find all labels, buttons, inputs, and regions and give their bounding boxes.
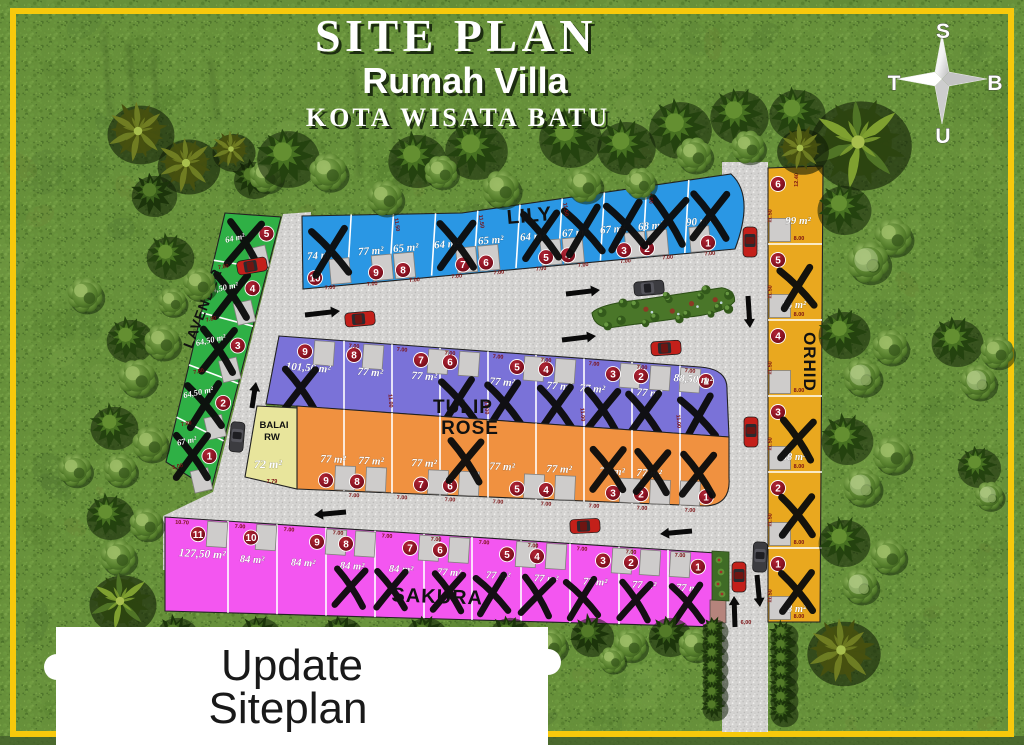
svg-text:7.00: 7.00 — [397, 347, 408, 354]
svg-text:8.00: 8.00 — [794, 236, 805, 242]
svg-text:5: 5 — [514, 363, 520, 374]
svg-text:10.70: 10.70 — [175, 520, 189, 527]
svg-text:7.00: 7.00 — [235, 524, 246, 531]
svg-text:Update: Update — [221, 641, 363, 690]
svg-text:3: 3 — [610, 489, 616, 500]
svg-text:7,79: 7,79 — [267, 479, 278, 485]
svg-text:7.00: 7.00 — [589, 503, 600, 509]
svg-text:77 m²: 77 m² — [411, 457, 438, 470]
svg-text:7.00: 7.00 — [662, 255, 673, 262]
svg-text:99 m²: 99 m² — [785, 215, 811, 227]
svg-text:77 m²: 77 m² — [358, 455, 385, 468]
svg-text:7.00: 7.00 — [409, 277, 420, 284]
svg-text:3: 3 — [235, 341, 241, 352]
svg-text:11.50: 11.50 — [767, 361, 773, 375]
svg-text:7: 7 — [418, 356, 424, 367]
svg-text:6,00: 6,00 — [741, 620, 752, 626]
svg-text:KOTA WISATA BATU: KOTA WISATA BATU — [306, 103, 610, 132]
svg-text:11.50: 11.50 — [767, 209, 773, 223]
svg-text:7.00: 7.00 — [284, 527, 295, 534]
svg-text:7.00: 7.00 — [493, 499, 504, 505]
svg-text:1: 1 — [695, 562, 701, 573]
svg-text:SAKURA: SAKURA — [391, 584, 483, 609]
svg-text:8: 8 — [343, 539, 349, 550]
svg-text:7.00: 7.00 — [493, 354, 504, 361]
svg-text:6: 6 — [447, 358, 453, 369]
svg-text:7.00: 7.00 — [536, 266, 547, 273]
svg-text:7.00: 7.00 — [333, 530, 344, 537]
svg-text:S: S — [936, 20, 950, 43]
svg-text:SITE PLAN: SITE PLAN — [315, 10, 597, 61]
svg-text:7: 7 — [418, 480, 424, 491]
svg-text:9: 9 — [302, 347, 308, 358]
svg-text:7.00: 7.00 — [528, 543, 539, 550]
svg-text:7.00: 7.00 — [626, 549, 637, 556]
svg-text:84 m²: 84 m² — [240, 554, 266, 566]
svg-text:RW: RW — [264, 432, 280, 443]
svg-text:7.00: 7.00 — [445, 351, 456, 358]
svg-text:8.00: 8.00 — [794, 540, 805, 546]
svg-text:7.00: 7.00 — [493, 270, 504, 277]
svg-text:11.00: 11.00 — [579, 408, 586, 422]
svg-text:7.00: 7.00 — [325, 285, 336, 292]
svg-text:4: 4 — [543, 365, 549, 376]
svg-text:11.00: 11.00 — [387, 394, 394, 408]
svg-text:ROSE: ROSE — [441, 418, 499, 439]
svg-text:77 m²: 77 m² — [357, 366, 384, 380]
svg-text:7.00: 7.00 — [675, 553, 686, 560]
svg-text:7.00: 7.00 — [577, 546, 588, 553]
svg-text:11.50: 11.50 — [767, 513, 773, 527]
svg-text:1: 1 — [705, 238, 711, 249]
svg-text:TULIP: TULIP — [433, 397, 493, 418]
svg-text:Siteplan: Siteplan — [208, 684, 367, 733]
svg-text:7.00: 7.00 — [451, 273, 462, 280]
svg-text:7.00: 7.00 — [685, 508, 696, 514]
svg-text:7.00: 7.00 — [637, 365, 648, 372]
svg-text:4: 4 — [534, 552, 540, 563]
svg-text:7.00: 7.00 — [431, 537, 442, 544]
svg-text:8: 8 — [400, 266, 406, 277]
svg-text:7.00: 7.00 — [685, 368, 696, 375]
svg-text:3: 3 — [621, 246, 627, 257]
svg-text:ORHID: ORHID — [800, 332, 819, 392]
svg-text:3: 3 — [610, 370, 616, 381]
svg-text:7.00: 7.00 — [637, 506, 648, 512]
svg-text:65 m²: 65 m² — [478, 234, 505, 248]
svg-text:7.00: 7.00 — [479, 540, 490, 547]
svg-text:7.00: 7.00 — [382, 533, 393, 540]
svg-text:4: 4 — [775, 332, 781, 343]
svg-text:B: B — [987, 72, 1002, 95]
svg-text:5: 5 — [514, 484, 520, 495]
svg-text:7.00: 7.00 — [445, 497, 456, 503]
svg-text:7.00: 7.00 — [589, 361, 600, 368]
svg-text:11.00: 11.00 — [675, 415, 682, 429]
svg-text:11: 11 — [193, 530, 204, 541]
svg-text:6: 6 — [437, 546, 443, 557]
svg-text:5: 5 — [504, 550, 510, 561]
svg-text:6: 6 — [775, 180, 781, 191]
svg-text:7.00: 7.00 — [704, 251, 715, 258]
svg-text:1: 1 — [775, 560, 781, 571]
svg-text:7.00: 7.00 — [541, 501, 552, 507]
svg-text:9: 9 — [373, 268, 379, 279]
svg-text:5: 5 — [543, 253, 549, 264]
svg-text:2: 2 — [220, 399, 226, 410]
svg-text:77 m²: 77 m² — [546, 463, 573, 476]
svg-text:2: 2 — [638, 372, 644, 383]
svg-text:U: U — [935, 125, 950, 148]
svg-text:77 m²: 77 m² — [358, 244, 385, 258]
svg-text:BALAI: BALAI — [259, 420, 288, 431]
svg-text:7.00: 7.00 — [578, 262, 589, 269]
svg-text:3: 3 — [600, 556, 606, 567]
svg-text:84 m²: 84 m² — [291, 557, 317, 569]
svg-text:7.00: 7.00 — [349, 343, 360, 350]
svg-text:8.00: 8.00 — [794, 312, 805, 318]
svg-text:9: 9 — [323, 476, 329, 487]
svg-text:7.00: 7.00 — [541, 358, 552, 365]
svg-text:8.00: 8.00 — [794, 464, 805, 470]
svg-text:7: 7 — [407, 544, 413, 555]
svg-text:7: 7 — [460, 260, 466, 271]
svg-text:10: 10 — [245, 533, 257, 544]
svg-text:4: 4 — [543, 486, 549, 497]
svg-text:77 m²: 77 m² — [489, 461, 516, 474]
svg-text:11.50: 11.50 — [767, 285, 773, 299]
svg-text:1: 1 — [207, 452, 213, 463]
svg-text:11.50: 11.50 — [767, 437, 773, 451]
svg-text:5: 5 — [264, 229, 270, 240]
svg-text:65 m²: 65 m² — [393, 241, 420, 255]
svg-text:5: 5 — [775, 256, 781, 267]
svg-text:12.40: 12.40 — [794, 173, 800, 187]
svg-text:9: 9 — [314, 538, 320, 549]
svg-text:Rumah Villa: Rumah Villa — [362, 60, 568, 101]
svg-text:7.00: 7.00 — [349, 493, 360, 499]
svg-text:8: 8 — [351, 351, 357, 362]
svg-text:6: 6 — [483, 258, 489, 269]
svg-text:4: 4 — [250, 284, 256, 295]
svg-text:7.00: 7.00 — [367, 281, 378, 288]
svg-text:2: 2 — [628, 558, 634, 569]
svg-text:77 m²: 77 m² — [411, 370, 438, 384]
svg-text:7.00: 7.00 — [397, 495, 408, 501]
svg-text:8: 8 — [354, 477, 360, 488]
svg-text:77 m²: 77 m² — [320, 453, 347, 466]
svg-text:7.00: 7.00 — [620, 258, 631, 265]
svg-text:2: 2 — [775, 484, 781, 495]
svg-text:72 m²: 72 m² — [254, 457, 282, 471]
svg-text:T: T — [888, 72, 901, 95]
svg-text:11.50: 11.50 — [767, 589, 773, 603]
svg-text:3: 3 — [775, 408, 781, 419]
svg-text:127,50 m²: 127,50 m² — [178, 547, 226, 561]
